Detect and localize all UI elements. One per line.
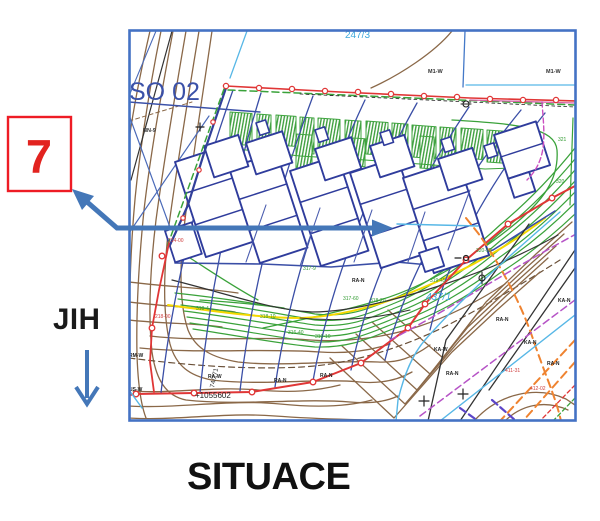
svg-text:411-31: 411-31 xyxy=(505,368,520,374)
svg-text:437/1: 437/1 xyxy=(426,292,451,303)
svg-text:KA-N: KA-N xyxy=(558,298,571,304)
svg-text:412-02: 412-02 xyxy=(530,386,546,392)
svg-text:SO 02: SO 02 xyxy=(129,78,200,106)
svg-text:RA-N: RA-N xyxy=(446,371,459,377)
svg-text:319-45: 319-45 xyxy=(430,278,446,284)
svg-text:RA-N: RA-N xyxy=(547,361,560,367)
svg-text:KA-N: KA-N xyxy=(524,340,537,346)
svg-text:KA-W: KA-W xyxy=(434,347,448,353)
svg-text:320-10: 320-10 xyxy=(476,248,492,254)
svg-text:316-10: 316-10 xyxy=(315,334,331,340)
svg-text:318-4: 318-4 xyxy=(196,306,209,312)
svg-text:317-9: 317-9 xyxy=(303,266,316,272)
svg-text:214-00: 214-00 xyxy=(168,238,184,244)
svg-text:316-40: 316-40 xyxy=(288,330,304,336)
svg-text:RA-N: RA-N xyxy=(352,278,365,284)
svg-text:318-20: 318-20 xyxy=(370,298,386,304)
svg-text:RA-N: RA-N xyxy=(496,317,509,323)
svg-text:+1055602: +1055602 xyxy=(195,391,231,400)
svg-text:JIH: JIH xyxy=(53,303,100,336)
svg-text:M1-W: M1-W xyxy=(546,69,561,75)
svg-text:US-W: US-W xyxy=(129,387,143,393)
svg-text:NN-9: NN-9 xyxy=(143,128,156,134)
svg-text:RA-N: RA-N xyxy=(274,378,287,384)
svg-text:318-10: 318-10 xyxy=(260,314,276,320)
svg-text:RM-W: RM-W xyxy=(129,353,143,359)
svg-text:320: 320 xyxy=(556,179,565,185)
svg-text:M1-W: M1-W xyxy=(428,69,443,75)
svg-text:RA-W: RA-W xyxy=(208,374,222,380)
svg-text:317-60: 317-60 xyxy=(343,296,359,302)
svg-text:218-00: 218-00 xyxy=(155,314,171,320)
svg-text:SITUACE: SITUACE xyxy=(187,456,350,498)
svg-text:RA-N: RA-N xyxy=(320,373,333,379)
svg-text:321: 321 xyxy=(558,137,567,143)
svg-text:7: 7 xyxy=(26,130,52,183)
